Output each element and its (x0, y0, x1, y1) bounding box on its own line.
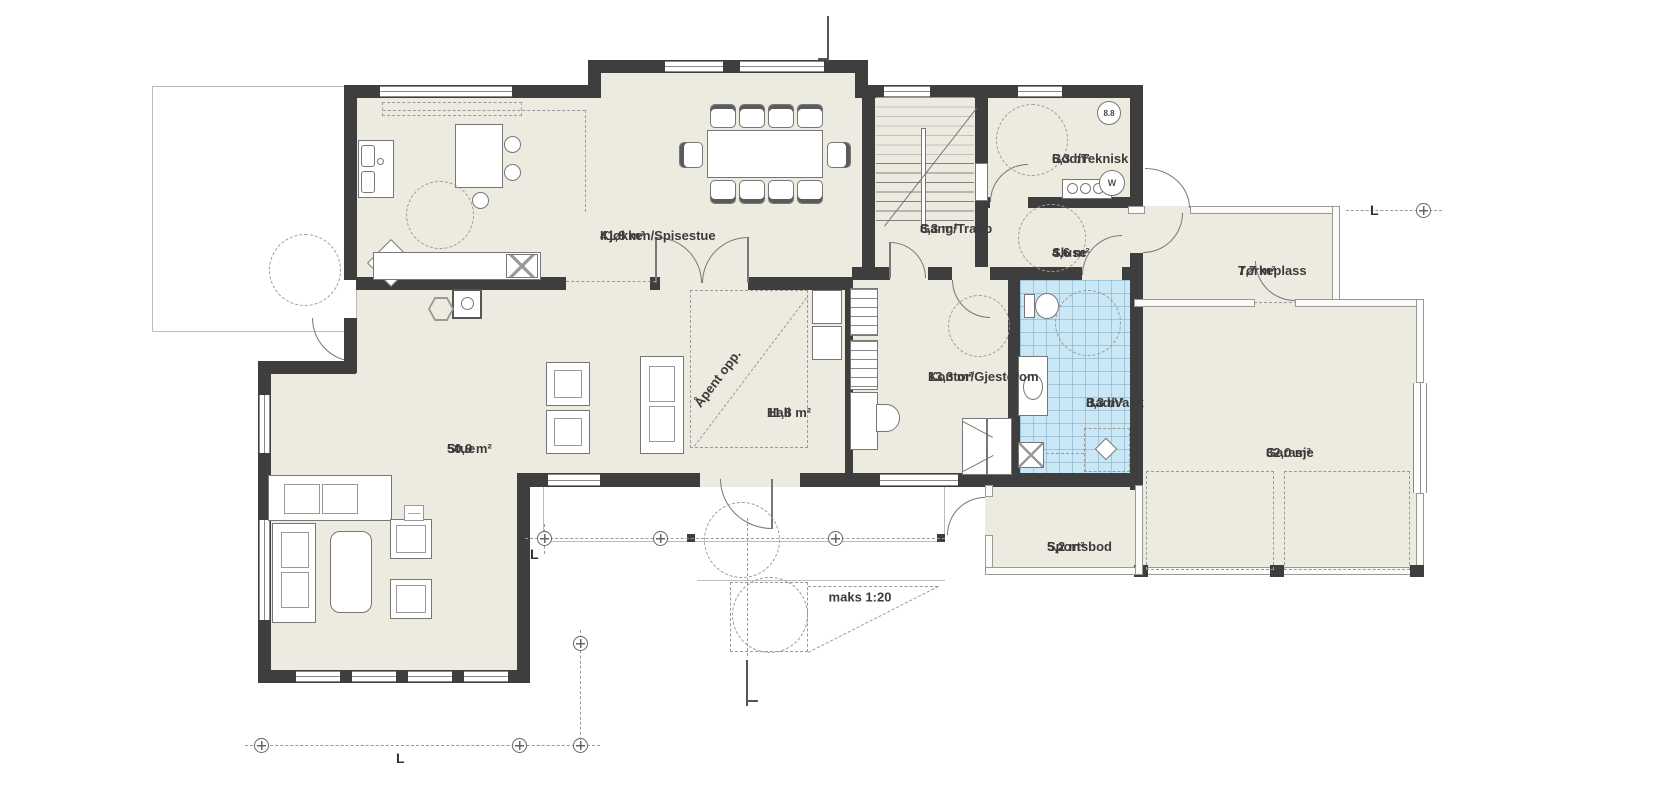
connector-line (1046, 453, 1084, 454)
bed-line (986, 419, 988, 474)
laundry-sink (1067, 183, 1078, 194)
parking-space (1284, 471, 1410, 570)
room-area: 6,3 m² (1052, 151, 1090, 167)
room-area: 8,3 m² (1086, 395, 1124, 411)
sofa-cushion (649, 406, 675, 442)
wall-light (985, 485, 993, 497)
torkeplass-gate-swing (1145, 168, 1190, 208)
dining-table (707, 130, 823, 178)
room-area: 11,8 m² (767, 405, 811, 421)
grid-line (525, 538, 945, 539)
window (884, 86, 930, 97)
dining-chair (739, 180, 765, 204)
terrace-turning-circle (269, 234, 341, 306)
window (259, 395, 270, 453)
grid-line (245, 745, 600, 746)
bar-stool (504, 164, 521, 181)
wall (344, 98, 357, 280)
room-area: 7,7 m² (1238, 263, 1276, 279)
door-leaf (747, 237, 749, 283)
faucet (377, 158, 384, 165)
survey-marker (573, 636, 588, 651)
dining-chair (797, 180, 823, 204)
floor-plan: W Åpent opp. maks 1: (0, 0, 1670, 800)
sluse-turning-circle (1018, 204, 1086, 272)
kontor-turning-circle (948, 295, 1010, 357)
wall (975, 85, 988, 163)
grid-letter: L (1370, 202, 1379, 218)
wall (517, 473, 530, 683)
ramp-turning-circle (732, 577, 808, 653)
section-mark (827, 16, 829, 62)
hall-wardrobe (812, 290, 842, 324)
window (408, 671, 452, 682)
sink-basin (361, 171, 375, 193)
window (1413, 383, 1427, 493)
ground-line (697, 580, 945, 581)
door-leaf (889, 242, 891, 278)
room-area: 41,8 m² (600, 228, 645, 244)
room-area: 8,3 m² (920, 221, 958, 237)
room-area: 5,2 m² (1047, 539, 1085, 555)
water-heater-letter: W (1108, 178, 1117, 188)
wall-light (1190, 206, 1340, 214)
room-area: 32,0 m² (1266, 445, 1311, 461)
dishwasher (506, 254, 538, 278)
ceiling-ref-line (585, 110, 586, 212)
wall (748, 277, 852, 290)
armchair-cushion (554, 370, 582, 398)
survey-marker (512, 738, 527, 753)
sofa-cushion (281, 532, 309, 568)
section-mark-tick (818, 58, 828, 60)
door-leaf-gang (975, 163, 988, 201)
wall-light (1295, 299, 1424, 307)
dining-chair (739, 104, 765, 128)
sofa-cushion (284, 484, 320, 514)
window (880, 474, 958, 486)
wall (517, 473, 1142, 487)
window (665, 61, 723, 72)
sofa-cushion (281, 572, 309, 608)
survey-marker (254, 738, 269, 753)
survey-marker (1416, 203, 1431, 218)
room-area: 4,6 m² (1052, 245, 1090, 261)
wall-light (1332, 206, 1340, 306)
window (259, 520, 270, 620)
survey-marker (828, 531, 843, 546)
window (352, 671, 396, 682)
dining-chair (679, 142, 703, 168)
coffee-table (330, 531, 372, 613)
ceiling-ref-line (383, 110, 585, 111)
armchair-cushion (396, 525, 426, 553)
wall-light (1135, 485, 1143, 575)
window (464, 671, 508, 682)
desk (850, 392, 878, 450)
water-heater: W (1099, 170, 1125, 196)
sofa-cushion (322, 484, 358, 514)
wall (258, 361, 356, 374)
room-area: 13,3 m² (928, 369, 973, 385)
wall (588, 60, 868, 73)
wall (1130, 253, 1143, 490)
wall (1130, 85, 1143, 213)
survey-marker (537, 531, 552, 546)
wall (862, 85, 875, 267)
armchair-cushion (554, 418, 582, 446)
room-area: 50,9 m² (447, 441, 492, 457)
overhead-cabinets (382, 102, 522, 116)
floor-sportsbod (985, 477, 1143, 575)
dining-chair (710, 104, 736, 128)
bookshelf (850, 288, 878, 336)
washing-machine (1018, 442, 1044, 468)
garage-door-post (1410, 565, 1424, 577)
sportsbod-door-swing (947, 497, 985, 535)
floor-hatch-tag (404, 505, 424, 521)
wall-light (1416, 493, 1424, 575)
ramp-edge (808, 586, 938, 587)
bookshelf (850, 340, 878, 390)
sink-basin (361, 145, 375, 167)
grid-letter: L (530, 546, 539, 562)
kitchen-island (455, 124, 503, 188)
reference-badge-text: 8.8 (1103, 109, 1114, 118)
wall-light (1134, 299, 1255, 307)
armchair-cushion (396, 585, 426, 613)
section-mark-tick (748, 700, 758, 702)
dining-chair (827, 142, 851, 168)
bar-stool (504, 136, 521, 153)
sofa-cushion (649, 366, 675, 402)
window (1018, 86, 1062, 97)
window (740, 61, 824, 72)
hall-wardrobe (812, 326, 842, 360)
laundry-sink (1080, 183, 1091, 194)
window (296, 671, 340, 682)
dining-chair (797, 104, 823, 128)
kitchen-turning-circle (406, 181, 474, 249)
open-above-outline (690, 290, 808, 448)
dining-chair (710, 180, 736, 204)
wall-light (1416, 299, 1424, 383)
survey-marker (653, 531, 668, 546)
ramp-note: maks 1:20 (829, 590, 892, 605)
parking-space (1146, 471, 1274, 570)
wall-light (985, 567, 1143, 575)
window (548, 474, 600, 486)
dining-chair (768, 104, 794, 128)
door-opening (952, 267, 990, 280)
open-boundary-line (566, 281, 656, 282)
bar-stool (472, 192, 489, 209)
fireplace-flue (461, 297, 474, 310)
window (380, 86, 512, 97)
toilet-tank (1024, 294, 1035, 318)
reference-badge: 8.8 (1097, 101, 1121, 125)
ramp-turning-circle (704, 502, 780, 578)
survey-marker (573, 738, 588, 753)
dining-chair (768, 180, 794, 204)
bad-turning-circle (1055, 290, 1121, 356)
grid-letter: L (396, 750, 405, 766)
